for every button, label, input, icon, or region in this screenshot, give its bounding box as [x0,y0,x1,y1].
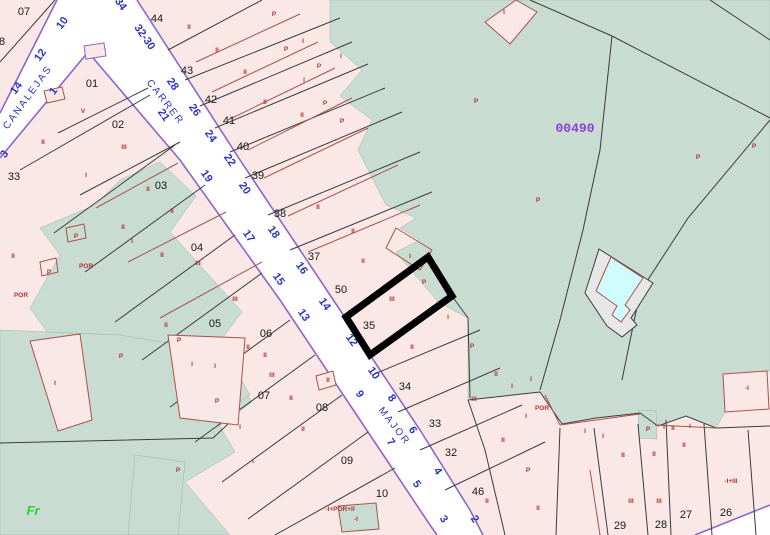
building-floors-label: II [289,395,293,402]
parcel-number: 09 [341,455,353,467]
parcel-number: 08 [316,402,328,414]
building-floors-label: II [11,253,15,260]
building-floors-label: P [526,467,531,474]
building-floors-label: II [215,47,219,54]
building-floors-label: III [471,396,477,403]
parcel-number: 50 [335,284,347,296]
parcel-number: 32 [445,447,457,459]
building-floors-label: II [410,344,414,351]
building-floors-label: -I+III [724,478,737,485]
building-floors-label: I [302,38,304,45]
building-floors-label: P [323,100,328,107]
building-floors-label: II [536,505,540,512]
building-floors-label: II [160,252,164,259]
building-floors-label: I [409,253,411,260]
building-floors-label: II [263,99,267,106]
building-floors-label: II [246,344,250,351]
building-floors-label: II [164,322,168,329]
parcel-number: 01 [86,78,98,90]
building-floors-label: II [121,224,125,231]
parcel-number: 40 [237,141,249,153]
cadastral-map[interactable]: CANALEJASCARRERMAJOR3432-302826242220181… [0,0,770,535]
building-floors-label: I [85,172,87,179]
building-floors-label: P [284,46,289,53]
building-floors-label: P [696,154,701,161]
building-floors-label: I [131,238,133,245]
parcel-number: 43 [181,65,193,77]
building-floors-label: III [232,296,238,303]
building-floors-label: II [316,204,320,211]
building-floors-label: POR [14,292,28,299]
parcel-number: 38 [274,208,286,220]
building-floors-label: III [628,498,634,505]
building-floors-label: II [146,186,150,193]
building-floors-label: II [671,425,675,432]
building-floors-label: II [351,228,355,235]
cadastral-map-viewport[interactable]: CANALEJASCARRERMAJOR3432-302826242220181… [0,0,770,535]
building-floors-label: II [621,452,625,459]
parcel-number: 34 [399,381,411,393]
parcel-number: 06 [260,328,272,340]
building-floors-label: I [602,433,604,440]
building-floors-label: P [47,269,52,276]
building-floors-label: II [485,498,489,505]
building-floors-label: P [176,467,181,474]
building-floors-label: I [525,413,527,420]
building-floors-label: V [81,108,86,115]
building-floors-label: II [170,208,174,215]
building-floors-label: II [501,437,505,444]
building-floors-label: I [511,383,513,390]
building-floors-label: II [243,69,247,76]
building-floors-label: I [214,363,216,370]
building-floors-label: II [263,352,267,359]
parcel-number: 37 [308,251,320,263]
building-floors-label: P [340,118,345,125]
building-floors-label: I [530,376,532,383]
parcel-number: 05 [209,318,221,330]
building-floors-label: III [269,372,275,379]
building-floors-label: P [422,279,427,286]
building-floors-label: P [752,143,757,150]
building-floors-label: P [119,353,124,360]
building-floors-label: P [474,98,479,105]
building-floors-label: II [41,139,45,146]
parcel-number: 10 [376,488,388,500]
building-floors-label: P [317,63,322,70]
building-floors-label: I [447,314,449,321]
building-floors-label: -I [354,516,358,523]
building-floors-label: I [303,77,305,84]
parcel-number: 03 [155,180,167,192]
building-floors-label: P [646,426,651,433]
building-floors-label: II [326,377,330,384]
parcel-number: 04 [191,242,203,254]
building-floors-label: I [252,458,254,465]
building-floors-label: II [361,258,365,265]
building-floors-label: III [195,260,201,267]
parcel-number: 8 [0,36,5,48]
parcel-number: 26 [720,507,732,519]
building-floors-label: I [584,428,586,435]
building-floors-label: II [187,24,191,31]
building-floors-label: I [663,424,665,431]
building-floors-label: I [503,9,505,16]
sector-number-label: 00490 [555,121,594,136]
parcel-number: 44 [151,13,163,25]
building-floors-label: I [191,361,193,368]
building-floors-label: III [656,498,662,505]
building-floors-label: II [494,371,498,378]
parcel-number: 28 [655,519,667,531]
building-floors-label: -I [745,385,749,392]
building-floors-label: POR [79,263,93,270]
building-floors-label: II [682,442,686,449]
building-floors-label: -I+POR+II [325,506,354,513]
building-floors-label: I [689,423,691,430]
parcel-number: 07 [18,6,30,18]
parcel-number: 42 [205,94,217,106]
building-floors-label: I [54,380,56,387]
building-floors-label: P [272,11,277,18]
building-floors-label: P [536,197,541,204]
parcel-number: 33 [8,171,20,183]
parcel-number: 41 [223,115,235,127]
parcel-number: 29 [614,520,626,532]
building-floors-label: P [74,233,79,240]
parcel-number: 02 [112,119,124,131]
building-floors-label: III [121,144,127,151]
building-floors-label: I [340,53,342,60]
parcel-number: 39 [252,170,264,182]
building-floors-label: II [301,426,305,433]
parcel-number: 33 [429,418,441,430]
building-floors-label: II [652,451,656,458]
parcel-number: 07 [258,390,270,402]
building-floors-label: P [177,337,182,344]
building-floors-label: III [389,296,395,303]
parcel-number: 35 [363,320,375,332]
fr-label: Fr [27,503,41,518]
parcel-number: 46 [472,486,484,498]
building-floors-label: P [470,343,475,350]
building-floors-label: I [239,424,241,431]
building-floors-label: II [300,112,304,119]
building-floors-label: POR [535,405,549,412]
building-floors-label: P [215,398,220,405]
parcel-number: 27 [680,509,692,521]
